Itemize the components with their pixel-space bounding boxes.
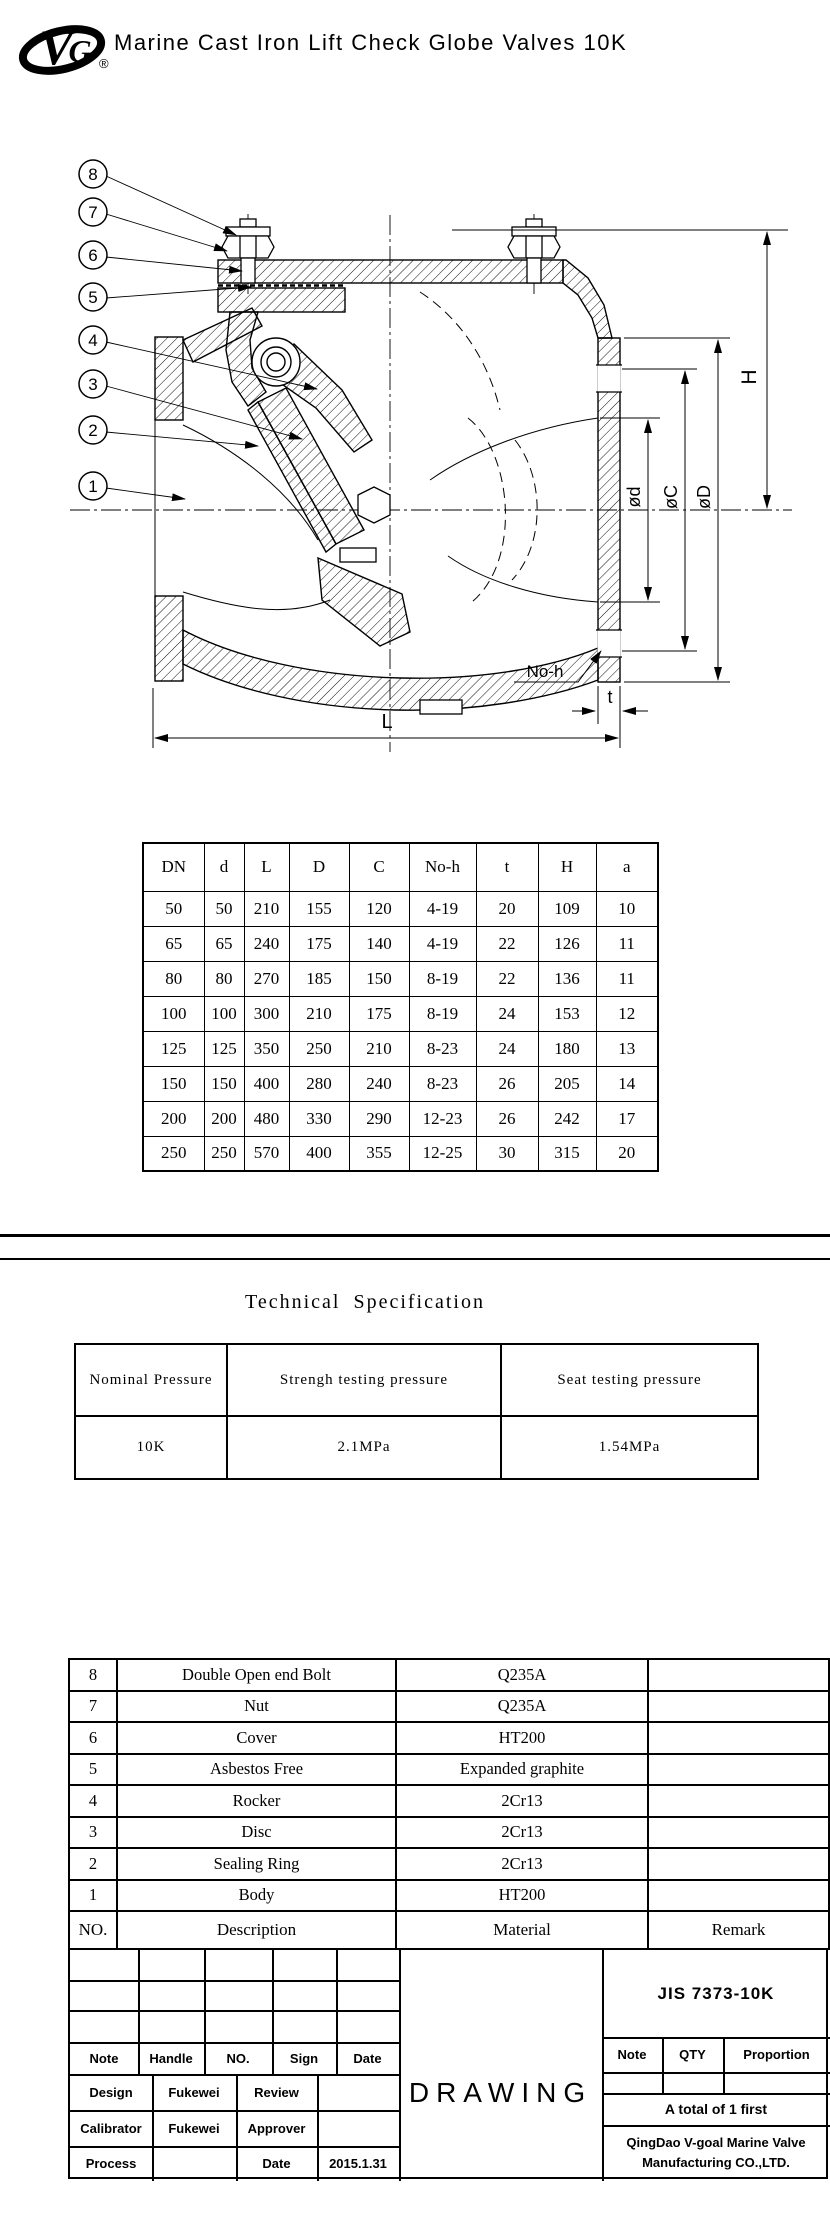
table-cell: 210 <box>244 891 289 926</box>
tb-review-value <box>317 2074 399 2110</box>
table-cell: 11 <box>596 961 658 996</box>
table-cell: 7 <box>69 1691 117 1723</box>
grid-line <box>70 2010 399 2012</box>
table-cell: Nut <box>117 1691 396 1723</box>
grid-line <box>70 1980 399 1982</box>
table-cell: 175 <box>289 926 349 961</box>
table-cell: Disc <box>117 1817 396 1849</box>
section-divider-thin <box>0 1258 830 1260</box>
table-cell: 26 <box>476 1101 538 1136</box>
svg-text:8: 8 <box>88 165 97 184</box>
table-cell: 185 <box>289 961 349 996</box>
callout-4: 4 <box>79 326 107 354</box>
table-cell: 175 <box>349 996 409 1031</box>
tb-qty-note-header: Note <box>602 2037 662 2072</box>
table-cell: 2.1MPa <box>227 1416 501 1479</box>
col-header: C <box>349 843 409 891</box>
table-row: 1BodyHT200 <box>69 1880 829 1912</box>
tech-spec-values: 10K 2.1MPa 1.54MPa <box>75 1416 758 1479</box>
svg-text:2: 2 <box>88 421 97 440</box>
table-cell: 2Cr13 <box>396 1785 648 1817</box>
callout-7: 7 <box>79 198 107 226</box>
table-cell: 315 <box>538 1136 596 1171</box>
table-cell: 50 <box>204 891 244 926</box>
table-cell: 120 <box>349 891 409 926</box>
parts-list-table: 8Double Open end BoltQ235A7NutQ235A6Cove… <box>68 1658 830 1950</box>
table-cell: 355 <box>349 1136 409 1171</box>
tb-approver-label: Approver <box>236 2110 317 2146</box>
tb-standard: JIS 7373-10K <box>602 1950 830 2037</box>
table-row: 1501504002802408-232620514 <box>143 1066 658 1101</box>
table-cell: 2Cr13 <box>396 1817 648 1849</box>
col-header: Material <box>396 1911 648 1949</box>
table-cell: 17 <box>596 1101 658 1136</box>
table-cell: 12-25 <box>409 1136 476 1171</box>
svg-text:4: 4 <box>88 331 97 350</box>
table-cell: Body <box>117 1880 396 1912</box>
tb-sign-header: Sign <box>272 2042 336 2074</box>
callout-3: 3 <box>79 370 107 398</box>
table-cell: 330 <box>289 1101 349 1136</box>
tb-note-header: Note <box>70 2042 138 2074</box>
table-cell: 400 <box>244 1066 289 1101</box>
table-cell: 2Cr13 <box>396 1848 648 1880</box>
tb-date-header: Date <box>336 2042 399 2074</box>
table-row: 8Double Open end BoltQ235A <box>69 1659 829 1691</box>
table-cell <box>648 1691 829 1723</box>
table-cell: 205 <box>538 1066 596 1101</box>
table-cell: 100 <box>143 996 204 1031</box>
table-cell: Expanded graphite <box>396 1754 648 1786</box>
table-cell: 26 <box>476 1066 538 1101</box>
col-header: L <box>244 843 289 891</box>
tb-calibrator-value: Fukewei <box>152 2110 236 2146</box>
table-row: 2Sealing Ring2Cr13 <box>69 1848 829 1880</box>
tb-handle-header: Handle <box>138 2042 204 2074</box>
col-header: d <box>204 843 244 891</box>
table-cell: 80 <box>204 961 244 996</box>
table-row: 7NutQ235A <box>69 1691 829 1723</box>
table-cell: Sealing Ring <box>117 1848 396 1880</box>
tb-date-label: Date <box>236 2146 317 2181</box>
svg-text:3: 3 <box>88 375 97 394</box>
table-cell: 8-23 <box>409 1031 476 1066</box>
col-header: a <box>596 843 658 891</box>
table-cell: 300 <box>244 996 289 1031</box>
table-cell: 3 <box>69 1817 117 1849</box>
dimension-table-header: DN d L D C No-h t H a <box>143 843 658 891</box>
svg-text:1: 1 <box>88 477 97 496</box>
rocker-pin <box>252 338 300 386</box>
table-cell: 200 <box>143 1101 204 1136</box>
table-cell: 136 <box>538 961 596 996</box>
svg-text:7: 7 <box>88 203 97 222</box>
table-cell: Q235A <box>396 1659 648 1691</box>
tb-design-value: Fukewei <box>152 2074 236 2110</box>
hatched-sections <box>155 260 620 710</box>
table-cell: 150 <box>204 1066 244 1101</box>
parts-list-footer: NO. Description Material Remark <box>69 1911 829 1949</box>
table-cell: 12 <box>596 996 658 1031</box>
callout-6: 6 <box>79 241 107 269</box>
dim-label-L: L <box>381 711 392 733</box>
table-cell: 150 <box>143 1066 204 1101</box>
table-cell <box>648 1817 829 1849</box>
tech-spec-title: Technical Specification <box>0 1291 730 1314</box>
table-cell: 290 <box>349 1101 409 1136</box>
table-cell: 10K <box>75 1416 227 1479</box>
table-cell: 8-19 <box>409 996 476 1031</box>
table-row: 6CoverHT200 <box>69 1722 829 1754</box>
table-cell: 24 <box>476 1031 538 1066</box>
table-cell: 20 <box>596 1136 658 1171</box>
tb-proportion-header: Proportion <box>723 2037 830 2072</box>
table-row: 4Rocker2Cr13 <box>69 1785 829 1817</box>
col-header: Nominal Pressure <box>75 1344 227 1416</box>
table-cell: 280 <box>289 1066 349 1101</box>
svg-text:5: 5 <box>88 288 97 307</box>
table-row: 80802701851508-192213611 <box>143 961 658 996</box>
table-cell: 125 <box>204 1031 244 1066</box>
title-block: Note Handle NO. Sign Date Design Fukewei… <box>68 1948 828 2179</box>
col-header: Strengh testing pressure <box>227 1344 501 1416</box>
dim-label-H: H <box>738 369 761 384</box>
table-cell: 50 <box>143 891 204 926</box>
col-header: H <box>538 843 596 891</box>
tb-no-header: NO. <box>204 2042 272 2074</box>
table-cell: 4-19 <box>409 926 476 961</box>
table-cell: Rocker <box>117 1785 396 1817</box>
table-row: 3Disc2Cr13 <box>69 1817 829 1849</box>
tb-process-label: Process <box>70 2146 152 2181</box>
tb-date-value: 2015.1.31 <box>317 2146 399 2181</box>
table-row: 50502101551204-192010910 <box>143 891 658 926</box>
tb-design-label: Design <box>70 2074 152 2110</box>
tb-approver-value <box>317 2110 399 2146</box>
table-cell: 240 <box>244 926 289 961</box>
table-cell: 240 <box>349 1066 409 1101</box>
col-header: D <box>289 843 349 891</box>
col-header: Remark <box>648 1911 829 1949</box>
dim-label-oD: øD <box>694 485 714 509</box>
table-cell: 8-19 <box>409 961 476 996</box>
tb-drawing-label: DRAWING <box>399 1950 602 2181</box>
table-cell: 250 <box>204 1136 244 1171</box>
table-cell: 400 <box>289 1136 349 1171</box>
table-row: 25025057040035512-253031520 <box>143 1136 658 1171</box>
table-row: 1001003002101758-192415312 <box>143 996 658 1031</box>
table-row: 1251253502502108-232418013 <box>143 1031 658 1066</box>
drawing-sheet: V G ® Marine Cast Iron Lift Check Globe … <box>0 0 830 2223</box>
table-cell <box>648 1848 829 1880</box>
table-cell: 350 <box>244 1031 289 1066</box>
table-cell: 125 <box>143 1031 204 1066</box>
table-cell: 30 <box>476 1136 538 1171</box>
table-cell: 4-19 <box>409 891 476 926</box>
tech-spec-header: Nominal Pressure Strengh testing pressur… <box>75 1344 758 1416</box>
table-cell: 10 <box>596 891 658 926</box>
col-header: No-h <box>409 843 476 891</box>
valve-cross-section-drawing: H ød øC øD No-h t L 8 <box>0 0 830 830</box>
table-cell: Q235A <box>396 1691 648 1723</box>
table-cell: 200 <box>204 1101 244 1136</box>
table-cell: Asbestos Free <box>117 1754 396 1786</box>
section-divider-thick <box>0 1234 830 1237</box>
table-cell: 242 <box>538 1101 596 1136</box>
tb-qty-header: QTY <box>662 2037 723 2072</box>
table-cell: 8 <box>69 1659 117 1691</box>
tb-process-value <box>152 2146 236 2181</box>
callout-5: 5 <box>79 283 107 311</box>
col-header: Description <box>117 1911 396 1949</box>
table-cell: 24 <box>476 996 538 1031</box>
table-cell: Cover <box>117 1722 396 1754</box>
table-cell: 180 <box>538 1031 596 1066</box>
table-cell: 2 <box>69 1848 117 1880</box>
tb-calibrator-label: Calibrator <box>70 2110 152 2146</box>
table-cell: 80 <box>143 961 204 996</box>
table-cell: 270 <box>244 961 289 996</box>
table-cell: 65 <box>143 926 204 961</box>
tb-review-label: Review <box>236 2074 317 2110</box>
table-row: 5Asbestos FreeExpanded graphite <box>69 1754 829 1786</box>
table-cell: HT200 <box>396 1880 648 1912</box>
table-cell <box>648 1785 829 1817</box>
tech-spec-table: Nominal Pressure Strengh testing pressur… <box>74 1343 759 1480</box>
callout-balloons: 8 7 6 5 4 3 2 <box>79 160 107 500</box>
table-cell: 11 <box>596 926 658 961</box>
table-cell: 480 <box>244 1101 289 1136</box>
callout-8: 8 <box>79 160 107 188</box>
table-cell: 14 <box>596 1066 658 1101</box>
col-header: NO. <box>69 1911 117 1949</box>
company-name-line2: Manufacturing CO.,LTD. <box>642 2153 790 2173</box>
table-row: 65652401751404-192212611 <box>143 926 658 961</box>
callout-2: 2 <box>79 416 107 444</box>
table-cell: 250 <box>143 1136 204 1171</box>
table-cell: 153 <box>538 996 596 1031</box>
dim-label-t: t <box>607 687 612 707</box>
table-cell: 13 <box>596 1031 658 1066</box>
drain-boss <box>420 700 462 714</box>
table-cell: 22 <box>476 961 538 996</box>
dim-label-noh: No-h <box>527 662 564 681</box>
table-cell: 65 <box>204 926 244 961</box>
col-header: t <box>476 843 538 891</box>
table-cell: 5 <box>69 1754 117 1786</box>
table-cell: 140 <box>349 926 409 961</box>
table-cell: 210 <box>349 1031 409 1066</box>
col-header: DN <box>143 843 204 891</box>
callout-1: 1 <box>79 472 107 500</box>
tb-company: QingDao V-goal Marine Valve Manufacturin… <box>602 2125 830 2181</box>
svg-text:6: 6 <box>88 246 97 265</box>
table-cell: 22 <box>476 926 538 961</box>
table-cell: 4 <box>69 1785 117 1817</box>
col-header: Seat testing pressure <box>501 1344 758 1416</box>
table-cell: 6 <box>69 1722 117 1754</box>
table-row: 20020048033029012-232624217 <box>143 1101 658 1136</box>
table-cell: 150 <box>349 961 409 996</box>
table-cell: 155 <box>289 891 349 926</box>
table-cell: 126 <box>538 926 596 961</box>
table-cell <box>648 1754 829 1786</box>
dim-label-od: ød <box>624 486 644 507</box>
grid-line <box>602 2072 830 2074</box>
table-cell: 20 <box>476 891 538 926</box>
tb-total-note: A total of 1 first <box>602 2093 830 2125</box>
table-cell: 100 <box>204 996 244 1031</box>
table-cell: 1.54MPa <box>501 1416 758 1479</box>
table-cell: 109 <box>538 891 596 926</box>
table-cell: 12-23 <box>409 1101 476 1136</box>
company-name-line1: QingDao V-goal Marine Valve <box>626 2133 805 2153</box>
table-cell: 210 <box>289 996 349 1031</box>
table-cell <box>648 1659 829 1691</box>
table-cell: Double Open end Bolt <box>117 1659 396 1691</box>
table-cell: 8-23 <box>409 1066 476 1101</box>
table-cell: HT200 <box>396 1722 648 1754</box>
table-cell <box>648 1880 829 1912</box>
table-cell <box>648 1722 829 1754</box>
dimension-table: DN d L D C No-h t H a 50502101551204-192… <box>142 842 659 1172</box>
dim-label-oC: øC <box>661 485 681 509</box>
table-cell: 250 <box>289 1031 349 1066</box>
table-cell: 570 <box>244 1136 289 1171</box>
table-cell: 1 <box>69 1880 117 1912</box>
